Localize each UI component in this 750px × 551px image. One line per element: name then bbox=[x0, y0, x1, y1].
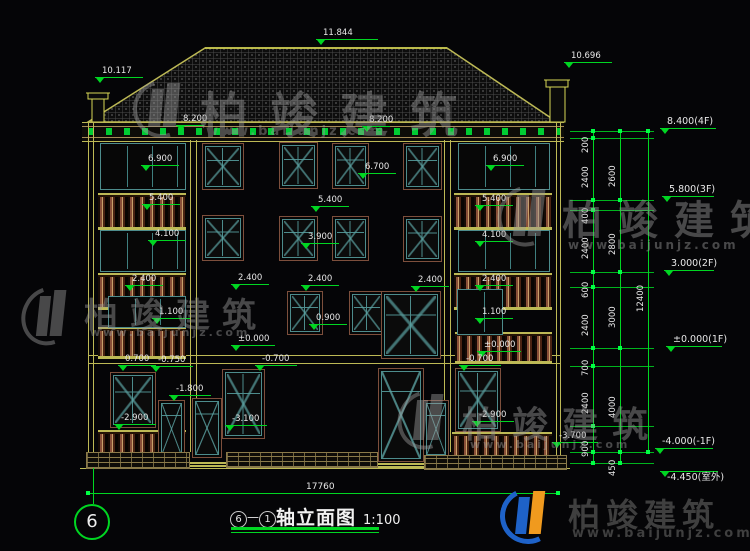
window bbox=[381, 291, 441, 359]
elevation-marker: 2.400 bbox=[301, 274, 339, 286]
brick-plinth bbox=[424, 455, 567, 470]
elevation-triangle-icon bbox=[661, 472, 669, 477]
elevation-marker: -0.700 bbox=[255, 354, 297, 366]
overall-width-dimline bbox=[88, 493, 560, 494]
elevation-marker: 6.700 bbox=[358, 162, 396, 174]
elevation-triangle-icon bbox=[170, 396, 178, 401]
elevation-marker: 1.100 bbox=[475, 307, 513, 319]
brick-plinth bbox=[86, 452, 190, 469]
elevation-value: 3.900 bbox=[301, 232, 339, 242]
elevation-marker: 2.400 bbox=[231, 273, 269, 285]
elevation-value: 2.400 bbox=[231, 273, 269, 283]
elevation-marker: 3.000(2F) bbox=[664, 258, 717, 271]
elevation-value: 6.900 bbox=[486, 154, 524, 164]
elevation-value: 0.900 bbox=[309, 313, 347, 323]
elevation-marker: 6.900 bbox=[141, 154, 179, 166]
elevation-marker: 6.900 bbox=[486, 154, 524, 166]
elevation-marker: -0.700 bbox=[459, 354, 501, 366]
elevation-triangle-icon bbox=[476, 206, 484, 211]
elevation-value: 1.100 bbox=[475, 307, 513, 317]
dimension-tick bbox=[646, 129, 650, 133]
elevation-marker: 2.400 bbox=[411, 275, 449, 287]
elevation-triangle-icon bbox=[412, 287, 420, 292]
elevation-marker: 5.400 bbox=[311, 195, 349, 207]
elevation-triangle-icon bbox=[476, 319, 484, 324]
window bbox=[403, 216, 442, 262]
brand-logo-icon bbox=[500, 488, 556, 544]
dimension-label: 2400 bbox=[581, 154, 591, 188]
elevation-marker: -3.100 bbox=[225, 414, 267, 426]
elevation-value: 10.696 bbox=[564, 51, 612, 61]
elevation-marker: ±0.000 bbox=[477, 340, 521, 352]
dimension-label: 2400 bbox=[581, 302, 591, 336]
elevation-marker: 4.100 bbox=[148, 229, 186, 241]
elevation-triangle-icon bbox=[302, 244, 310, 249]
elevation-triangle-icon bbox=[226, 426, 234, 431]
watermark-logo-icon bbox=[398, 390, 454, 450]
dimension-tick bbox=[618, 346, 622, 350]
watermark-logo-icon bbox=[133, 80, 191, 138]
elevation-marker: 2.400 bbox=[125, 274, 163, 286]
brick-plinth bbox=[226, 452, 378, 468]
elevation-marker: 8.400(4F) bbox=[660, 116, 716, 129]
elevation-triangle-icon bbox=[142, 166, 150, 171]
elevation-triangle-icon bbox=[256, 366, 264, 371]
elevation-value: -1.800 bbox=[169, 384, 211, 394]
elevation-triangle-icon bbox=[476, 242, 484, 247]
elevation-value: 8.400(4F) bbox=[660, 116, 716, 127]
step-line bbox=[372, 463, 430, 465]
elevation-value: 2.400 bbox=[301, 274, 339, 284]
elevation-marker: -1.800 bbox=[169, 384, 211, 396]
dimension-label: 200 bbox=[581, 119, 591, 153]
elevation-marker: 11.844 bbox=[316, 28, 378, 40]
elevation-value: 5.400 bbox=[311, 195, 349, 205]
title-name: 轴立面图 bbox=[276, 507, 356, 529]
elevation-triangle-icon bbox=[656, 449, 664, 454]
elevation-value: -4.450(室外) bbox=[660, 472, 724, 483]
elevation-triangle-icon bbox=[310, 325, 318, 330]
window bbox=[279, 142, 318, 189]
overall-width-label: 17760 bbox=[306, 482, 335, 492]
drawing-title: 6—1轴立面图1:100 bbox=[230, 503, 400, 530]
elevation-value: 2.400 bbox=[411, 275, 449, 285]
title-axis-end: 1 bbox=[259, 511, 276, 528]
elevation-triangle-icon bbox=[302, 286, 310, 291]
elevation-triangle-icon bbox=[96, 78, 104, 83]
elevation-marker: 10.117 bbox=[95, 66, 143, 78]
window bbox=[403, 143, 442, 190]
elevation-triangle-icon bbox=[312, 207, 320, 212]
elevation-value: ±0.000(1F) bbox=[666, 334, 727, 345]
elevation-value: 5.400 bbox=[142, 193, 180, 203]
elevation-value: 4.100 bbox=[148, 229, 186, 239]
axis-extension-line bbox=[93, 468, 94, 504]
elevation-value: -0.700 bbox=[459, 354, 501, 364]
elevation-triangle-icon bbox=[152, 367, 160, 372]
elevation-triangle-icon bbox=[359, 174, 367, 179]
door bbox=[192, 398, 222, 458]
elevation-value: -3.100 bbox=[225, 414, 267, 424]
balcony-opening bbox=[458, 143, 550, 190]
dimension-label: 12400 bbox=[636, 278, 646, 312]
window bbox=[349, 291, 385, 335]
elevation-triangle-icon bbox=[476, 286, 484, 291]
door bbox=[158, 400, 185, 458]
title-scale: 1:100 bbox=[363, 513, 400, 528]
title-underline-thin bbox=[231, 532, 379, 533]
elevation-triangle-icon bbox=[487, 166, 495, 171]
elevation-marker: 5.400 bbox=[142, 193, 180, 205]
elevation-value: -0.750 bbox=[151, 355, 193, 365]
watermark-logo-icon bbox=[498, 185, 556, 247]
elevation-marker: -4.000(-1F) bbox=[655, 436, 715, 449]
title-underline bbox=[231, 527, 379, 530]
elevation-value: 3.000(2F) bbox=[664, 258, 717, 269]
dimension-label: 2600 bbox=[608, 153, 618, 187]
elevation-triangle-icon bbox=[317, 40, 325, 45]
elevation-marker: 10.696 bbox=[564, 51, 612, 63]
elevation-value: -0.700 bbox=[255, 354, 297, 364]
axis-bubble: 6 bbox=[74, 504, 110, 540]
elevation-value: 2.400 bbox=[125, 274, 163, 284]
dimension-tick bbox=[591, 136, 595, 140]
elevation-marker: 0.900 bbox=[309, 313, 347, 325]
elevation-marker: 3.900 bbox=[301, 232, 339, 244]
elevation-marker: -2.900 bbox=[114, 413, 156, 425]
dimension-tick bbox=[591, 364, 595, 368]
cad-elevation-canvas: 柏竣建筑 www.baijunjz.com 柏竣建筑 www.baijunjz.… bbox=[0, 0, 750, 551]
elevation-marker: -4.450(室外) bbox=[660, 470, 724, 483]
elevation-triangle-icon bbox=[119, 366, 127, 371]
elevation-triangle-icon bbox=[149, 241, 157, 246]
title-axis-start: 6 bbox=[230, 511, 247, 528]
dimension-tick bbox=[591, 461, 595, 465]
dimension-tick bbox=[591, 270, 595, 274]
dimension-tick bbox=[646, 450, 650, 454]
elevation-marker: -0.750 bbox=[151, 355, 193, 367]
title-dash: — bbox=[247, 510, 259, 524]
elevation-value: -4.000(-1F) bbox=[655, 436, 715, 447]
elevation-value: 11.844 bbox=[316, 28, 378, 38]
elevation-triangle-icon bbox=[661, 129, 669, 134]
elevation-triangle-icon bbox=[565, 63, 573, 68]
dimension-tick bbox=[591, 285, 595, 289]
dimension-tick bbox=[591, 346, 595, 350]
elevation-value: 2.400 bbox=[475, 274, 513, 284]
elevation-value: 6.700 bbox=[358, 162, 396, 172]
elevation-marker: ±0.000(1F) bbox=[666, 334, 727, 347]
elevation-value: 10.117 bbox=[95, 66, 143, 76]
dimension-tick bbox=[591, 129, 595, 133]
dimension-label: 3000 bbox=[608, 294, 618, 328]
elevation-triangle-icon bbox=[667, 347, 675, 352]
elevation-value: 6.900 bbox=[141, 154, 179, 164]
elevation-line bbox=[316, 39, 378, 40]
dimension-label: 600 bbox=[581, 264, 591, 298]
elevation-triangle-icon bbox=[665, 271, 673, 276]
window bbox=[202, 215, 244, 261]
elevation-value: -2.900 bbox=[114, 413, 156, 423]
elevation-value: ±0.000 bbox=[477, 340, 521, 350]
elevation-triangle-icon bbox=[143, 205, 151, 210]
step-line bbox=[183, 462, 231, 464]
elevation-triangle-icon bbox=[460, 366, 468, 371]
elevation-triangle-icon bbox=[115, 425, 123, 430]
watermark-logo-icon bbox=[22, 286, 76, 346]
dimension-tick bbox=[618, 129, 622, 133]
window bbox=[202, 143, 244, 190]
dimension-tick bbox=[618, 461, 622, 465]
dimension-label: 700 bbox=[581, 342, 591, 376]
step-line bbox=[186, 465, 230, 467]
elevation-marker: 2.400 bbox=[475, 274, 513, 286]
dimension-tick bbox=[618, 270, 622, 274]
elevation-triangle-icon bbox=[232, 346, 240, 351]
